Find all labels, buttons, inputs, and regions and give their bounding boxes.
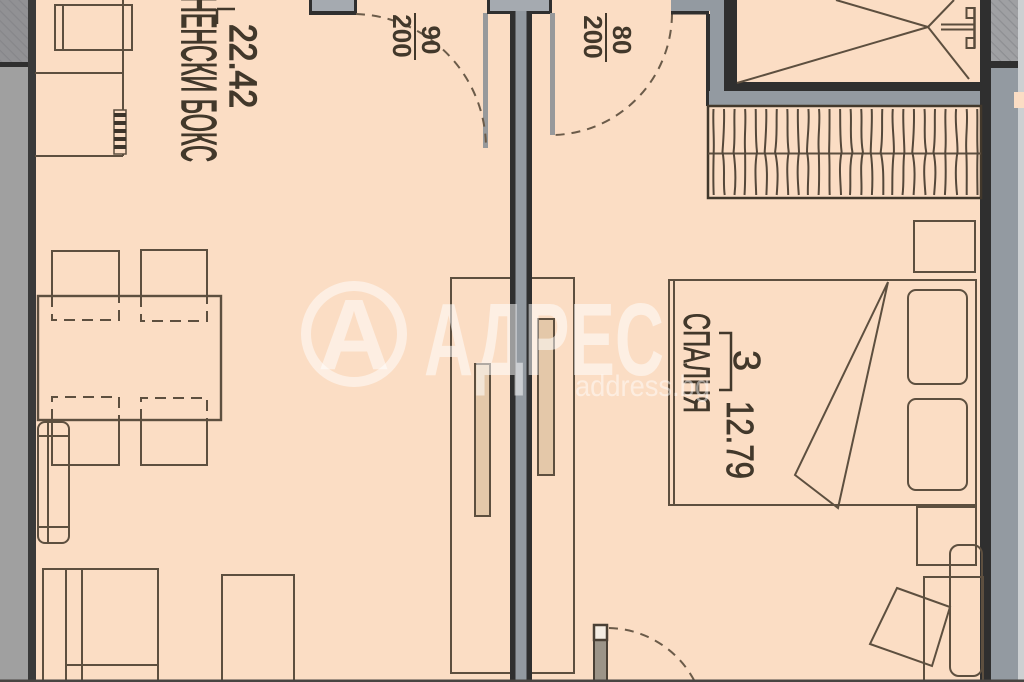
svg-text:3: 3 <box>725 350 767 371</box>
svg-text:80: 80 <box>607 26 637 55</box>
svg-text:200: 200 <box>578 15 608 58</box>
svg-text:address.bg: address.bg <box>575 370 710 403</box>
svg-text:22.42: 22.42 <box>221 24 263 108</box>
svg-text:НЕНСКИ БОКС: НЕНСКИ БОКС <box>171 0 225 162</box>
svg-text:200: 200 <box>387 14 417 57</box>
svg-text:А: А <box>318 279 390 391</box>
svg-text:90: 90 <box>416 26 446 55</box>
svg-text:12.79: 12.79 <box>718 401 760 479</box>
